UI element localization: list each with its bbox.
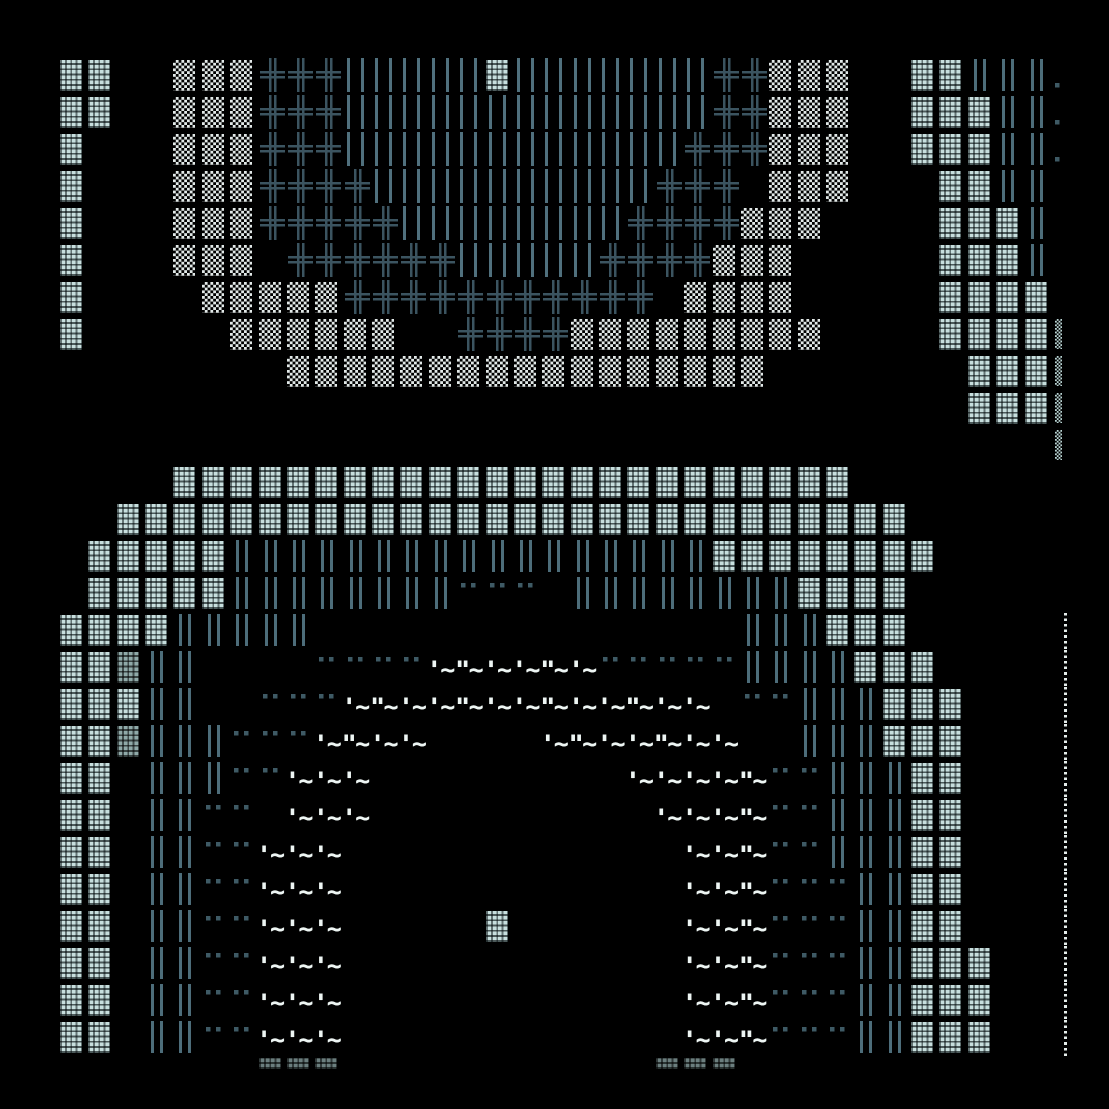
dense-bars-cell-glyph	[432, 169, 449, 203]
wave-double-tick-cell-glyph: "~	[739, 914, 766, 944]
wave-double-tick-cell: "~	[344, 723, 373, 760]
wall-double-bar-cell-glyph	[520, 540, 532, 572]
block-bright-cell	[429, 501, 458, 538]
double-cross-cell	[344, 279, 373, 316]
block-bright-cell-glyph	[429, 467, 451, 498]
block-white-cell	[202, 131, 231, 168]
block-bright-cell	[287, 464, 316, 501]
wall-double-bar-cell	[315, 538, 344, 575]
block-bright-cell	[939, 686, 968, 723]
wave-cell: '~	[287, 945, 316, 982]
dots-pair-cell-glyph	[400, 649, 429, 686]
wave-cell-glyph: '~	[711, 914, 738, 944]
block-white-cell	[798, 205, 827, 242]
double-cross-cell-glyph	[742, 132, 767, 166]
wall-double-bar-cell-glyph	[236, 540, 248, 572]
block-bright-cell	[571, 464, 600, 501]
dotted-line-cell	[1053, 834, 1082, 871]
double-cross-cell-glyph	[373, 243, 398, 277]
block-white-cell-glyph	[400, 356, 422, 387]
block-bright-cell-glyph	[684, 467, 706, 498]
block-white-cell	[344, 353, 373, 390]
wall-double-bar-cell-glyph	[151, 910, 163, 942]
wall-double-bar-cell-glyph	[804, 651, 816, 683]
block-bright-cell	[145, 501, 174, 538]
dots-pair-cell	[769, 1019, 798, 1056]
block-bright-cell	[911, 723, 940, 760]
dense-bars-cell	[542, 57, 571, 94]
block-white-cell-glyph	[769, 97, 791, 128]
block-bright-cell-glyph	[627, 467, 649, 498]
wall-double-bar-cell-glyph	[179, 725, 191, 757]
dots-pair-cell-glyph	[769, 797, 798, 834]
wall-double-bar-cell	[741, 612, 770, 649]
wave-double-tick-cell-glyph: "~	[739, 951, 766, 981]
wall-double-bar-cell	[627, 575, 656, 612]
wave-cell-glyph: '~	[682, 1025, 709, 1055]
wall-double-bar-cell-glyph	[151, 836, 163, 868]
block-white-cell	[230, 168, 259, 205]
dots-pair-cell	[400, 649, 429, 686]
double-cross-cell	[259, 205, 288, 242]
dots-pair-cell-glyph	[287, 723, 316, 760]
dense-bars-cell-glyph	[630, 169, 647, 203]
double-cross-cell-glyph	[515, 317, 540, 351]
block-white-cell	[769, 316, 798, 353]
wall-double-bar-cell-glyph	[265, 577, 277, 609]
double-cross-cell-glyph	[430, 243, 455, 277]
wave-cell: '~	[400, 723, 429, 760]
wall-double-bar-cell-glyph	[179, 984, 191, 1016]
dense-bars-cell-glyph	[602, 58, 619, 92]
wall-double-bar-cell-glyph	[151, 799, 163, 831]
wave-cell-glyph: '~	[540, 729, 567, 759]
block-bright-cell-glyph	[883, 726, 905, 757]
block-bright-cell	[145, 575, 174, 612]
wall-double-bar-cell	[713, 575, 742, 612]
wave-double-tick-cell: "~	[741, 945, 770, 982]
block-bright-cell	[344, 501, 373, 538]
dots-pair-cell-glyph	[798, 871, 827, 908]
wave-cell-glyph: '~	[285, 877, 312, 907]
dense-bars-cell	[429, 205, 458, 242]
dotted-line-cell-glyph	[1064, 834, 1067, 871]
block-bright-cell-glyph	[486, 504, 508, 535]
double-cross-cell	[259, 94, 288, 131]
block-bright-cell	[713, 538, 742, 575]
wall-double-bar-cell-glyph	[179, 762, 191, 794]
dotted-line-cell	[1053, 1019, 1082, 1056]
double-cross-cell-glyph	[657, 169, 682, 203]
wall-double-bar-cell-glyph	[719, 577, 731, 609]
wall-double-bar-cell	[259, 538, 288, 575]
wall-double-bar-cell-glyph	[690, 577, 702, 609]
wave-cell: '~	[287, 908, 316, 945]
wave-cell-glyph: '~	[597, 692, 624, 722]
wall-double-bar-cell	[173, 1019, 202, 1056]
block-bright-cell	[911, 57, 940, 94]
double-cross-cell	[542, 279, 571, 316]
block-bright-cell-glyph	[514, 504, 536, 535]
wall-double-bar-cell-glyph	[350, 540, 362, 572]
block-white-cell-glyph	[656, 319, 678, 350]
wave-cell-glyph: '~	[682, 803, 709, 833]
block-fade-cell-glyph	[259, 1058, 281, 1069]
block-bright-cell	[996, 279, 1025, 316]
dot-cell	[1053, 131, 1082, 168]
dense-bars-cell-glyph	[602, 95, 619, 129]
wave-cell: '~	[259, 871, 288, 908]
wave-cell: '~	[684, 871, 713, 908]
wall-double-bar-cell-glyph	[179, 910, 191, 942]
wall-double-bar-cell-glyph	[832, 836, 844, 868]
block-white-cell	[230, 205, 259, 242]
block-bright-cell	[60, 612, 89, 649]
block-fade-cell-glyph	[713, 1058, 735, 1069]
double-cross-cell	[627, 242, 656, 279]
block-dim-cell-glyph	[117, 652, 139, 683]
wall-double-bar-cell	[769, 575, 798, 612]
block-bright-cell	[88, 982, 117, 1019]
double-cross-cell-glyph	[345, 169, 370, 203]
wave-cell: '~	[656, 760, 685, 797]
double-cross-cell	[372, 205, 401, 242]
block-bright-cell	[88, 797, 117, 834]
dots-pair-cell-glyph	[769, 945, 798, 982]
wave-cell: '~	[315, 797, 344, 834]
dots-pair-cell-glyph	[741, 686, 770, 723]
dots-pair-cell-glyph	[826, 908, 855, 945]
dense-bars-cell-glyph	[347, 132, 364, 166]
block-white-cell	[173, 57, 202, 94]
double-cross-cell-glyph	[458, 317, 483, 351]
dense-bars-cell	[571, 94, 600, 131]
block-bright-cell-glyph	[88, 97, 110, 128]
block-bright-cell	[996, 316, 1025, 353]
dense-bars-cell	[457, 131, 486, 168]
wave-cell: '~	[684, 723, 713, 760]
dots-pair-cell	[798, 797, 827, 834]
block-bright-cell	[883, 575, 912, 612]
block-bright-cell-glyph	[968, 208, 990, 239]
wave-cell-glyph: '~	[313, 1025, 340, 1055]
block-bright-cell-glyph	[939, 171, 961, 202]
wave-double-tick-cell-glyph: "~	[739, 840, 766, 870]
dots-pair-cell	[486, 575, 515, 612]
wall-double-bar-cell	[883, 871, 912, 908]
dots-pair-cell	[826, 908, 855, 945]
dense-bars-cell	[457, 205, 486, 242]
wave-cell-glyph: '~	[257, 877, 284, 907]
block-white-cell-glyph	[173, 208, 195, 239]
zigzag-edge-cell-glyph	[1055, 319, 1062, 349]
block-bright-cell-glyph	[287, 467, 309, 498]
block-white-cell-glyph	[713, 319, 735, 350]
dots-pair-cell	[372, 649, 401, 686]
wall-double-bar-cell-glyph	[889, 799, 901, 831]
block-bright-cell	[88, 834, 117, 871]
wave-cell-glyph: '~	[370, 729, 397, 759]
wall-double-bar-cell-glyph	[1031, 96, 1043, 128]
dots-pair-cell-glyph	[514, 575, 543, 612]
wall-double-bar-cell	[1025, 168, 1054, 205]
wall-double-bar-cell-glyph	[775, 614, 787, 646]
wall-double-bar-cell	[145, 982, 174, 1019]
block-bright-cell-glyph	[798, 578, 820, 609]
dotted-line-cell-glyph	[1064, 945, 1067, 982]
block-bright-cell	[429, 464, 458, 501]
dots-pair-cell-glyph	[230, 1019, 259, 1056]
block-bright-cell-glyph	[713, 467, 735, 498]
wave-cell: '~	[259, 908, 288, 945]
wall-double-bar-cell	[145, 686, 174, 723]
dense-bars-cell	[571, 131, 600, 168]
wall-double-bar-cell	[883, 908, 912, 945]
dots-pair-cell-glyph	[798, 908, 827, 945]
block-bright-cell-glyph	[911, 800, 933, 831]
block-bright-cell	[854, 538, 883, 575]
wall-double-bar-cell	[173, 834, 202, 871]
zigzag-edge-cell	[1053, 353, 1082, 390]
dots-pair-cell-glyph	[202, 797, 231, 834]
wall-double-bar-cell-glyph	[208, 725, 220, 757]
block-bright-cell-glyph	[117, 689, 139, 720]
wall-double-bar-cell	[996, 131, 1025, 168]
wave-cell: '~	[315, 723, 344, 760]
block-white-cell	[202, 205, 231, 242]
block-white-cell	[571, 316, 600, 353]
wall-double-bar-cell	[854, 945, 883, 982]
wall-double-bar-cell	[173, 686, 202, 723]
zigzag-edge-cell	[1053, 427, 1082, 464]
block-white-cell	[627, 316, 656, 353]
dots-pair-cell-glyph	[230, 797, 259, 834]
double-cross-cell	[514, 316, 543, 353]
block-bright-cell-glyph	[60, 763, 82, 794]
wall-double-bar-cell	[457, 538, 486, 575]
double-cross-cell-glyph	[657, 243, 682, 277]
double-cross-cell	[741, 57, 770, 94]
block-white-cell	[259, 316, 288, 353]
block-bright-cell-glyph	[60, 911, 82, 942]
block-bright-cell-glyph	[60, 874, 82, 905]
block-bright-cell	[486, 501, 515, 538]
block-bright-cell-glyph	[344, 504, 366, 535]
wave-cell: '~	[344, 760, 373, 797]
block-bright-cell	[911, 982, 940, 1019]
block-bright-cell	[60, 797, 89, 834]
wall-double-bar-cell	[486, 538, 515, 575]
block-bright-cell	[117, 575, 146, 612]
wave-cell-glyph: '~	[682, 692, 709, 722]
block-bright-cell	[230, 464, 259, 501]
block-bright-cell	[939, 834, 968, 871]
block-bright-cell-glyph	[599, 467, 621, 498]
block-bright-cell-glyph	[911, 837, 933, 868]
block-fade-cell	[287, 1056, 316, 1093]
wall-double-bar-cell-glyph	[860, 836, 872, 868]
dense-bars-cell-glyph	[347, 95, 364, 129]
block-bright-cell-glyph	[996, 393, 1018, 424]
block-white-cell-glyph	[230, 208, 252, 239]
block-white-cell	[684, 279, 713, 316]
wall-double-bar-cell	[259, 612, 288, 649]
block-bright-cell-glyph	[798, 504, 820, 535]
block-bright-cell-glyph	[145, 504, 167, 535]
dots-pair-cell	[599, 649, 628, 686]
double-cross-cell-glyph	[288, 169, 313, 203]
block-white-cell-glyph	[769, 208, 791, 239]
block-white-cell-glyph	[287, 356, 309, 387]
block-white-cell-glyph	[315, 319, 337, 350]
block-white-cell-glyph	[713, 245, 735, 276]
double-cross-cell	[315, 205, 344, 242]
double-cross-cell	[429, 279, 458, 316]
block-white-cell-glyph	[372, 319, 394, 350]
wave-cell: '~	[542, 723, 571, 760]
block-white-cell-glyph	[769, 319, 791, 350]
block-white-cell	[769, 242, 798, 279]
block-bright-cell-glyph	[60, 800, 82, 831]
double-cross-cell	[713, 131, 742, 168]
wall-double-bar-cell	[599, 575, 628, 612]
block-bright-cell	[798, 575, 827, 612]
block-white-cell-glyph	[230, 319, 252, 350]
wall-double-bar-cell	[798, 612, 827, 649]
block-white-cell	[713, 279, 742, 316]
block-bright-cell-glyph	[939, 726, 961, 757]
dots-pair-cell	[230, 760, 259, 797]
wall-double-bar-cell	[826, 649, 855, 686]
wall-double-bar-cell	[883, 834, 912, 871]
wave-double-tick-cell-glyph: "~	[540, 692, 567, 722]
double-cross-cell	[457, 279, 486, 316]
wall-double-bar-cell	[571, 538, 600, 575]
wave-cell-glyph: '~	[285, 914, 312, 944]
wave-cell-glyph: '~	[342, 803, 369, 833]
wall-double-bar-cell	[854, 871, 883, 908]
block-bright-cell	[939, 982, 968, 1019]
dense-bars-cell	[400, 131, 429, 168]
block-bright-cell	[883, 501, 912, 538]
block-white-cell	[230, 94, 259, 131]
dots-pair-cell	[769, 834, 798, 871]
wave-cell-glyph: '~	[285, 951, 312, 981]
double-cross-cell-glyph	[487, 280, 512, 314]
block-bright-cell-glyph	[202, 504, 224, 535]
wall-double-bar-cell-glyph	[690, 540, 702, 572]
wave-double-tick-cell: "~	[542, 686, 571, 723]
block-bright-cell-glyph	[88, 1022, 110, 1053]
block-white-cell	[826, 57, 855, 94]
wave-cell-glyph: '~	[484, 692, 511, 722]
block-bright-cell	[883, 538, 912, 575]
block-bright-cell	[968, 982, 997, 1019]
wall-double-bar-cell-glyph	[889, 947, 901, 979]
wave-cell: '~	[684, 797, 713, 834]
block-bright-cell	[627, 464, 656, 501]
wall-double-bar-cell-glyph	[1002, 96, 1014, 128]
wave-cell: '~	[713, 871, 742, 908]
wave-cell: '~	[713, 723, 742, 760]
block-bright-cell-glyph	[60, 615, 82, 646]
dotted-line-cell	[1053, 723, 1082, 760]
block-bright-cell-glyph	[911, 726, 933, 757]
wave-double-tick-cell: "~	[741, 834, 770, 871]
block-white-cell-glyph	[230, 171, 252, 202]
block-bright-cell-glyph	[826, 504, 848, 535]
block-white-cell-glyph	[684, 282, 706, 313]
dots-pair-cell-glyph	[656, 649, 685, 686]
block-white-cell	[315, 316, 344, 353]
block-bright-cell	[599, 501, 628, 538]
ascii-art-grid: '~"~'~'~"~'~'~"~'~'~"~'~'~"~'~'~"~'~'~'~…	[0, 0, 1109, 1109]
dots-pair-cell	[826, 945, 855, 982]
wave-double-tick-cell: "~	[627, 686, 656, 723]
dotted-line-cell	[1053, 612, 1082, 649]
block-bright-cell-glyph	[826, 578, 848, 609]
wall-double-bar-cell-glyph	[633, 577, 645, 609]
block-white-cell-glyph	[826, 171, 848, 202]
dense-bars-cell	[486, 131, 515, 168]
dense-bars-cell-glyph	[517, 169, 534, 203]
block-white-cell	[344, 316, 373, 353]
double-cross-cell-glyph	[345, 280, 370, 314]
block-bright-cell-glyph	[826, 615, 848, 646]
wave-cell: '~	[684, 982, 713, 1019]
block-white-cell-glyph	[627, 356, 649, 387]
wave-cell-glyph: '~	[285, 766, 312, 796]
double-cross-cell-glyph	[345, 243, 370, 277]
wall-double-bar-cell-glyph	[577, 577, 589, 609]
block-white-cell-glyph	[741, 282, 763, 313]
dots-pair-cell-glyph	[230, 908, 259, 945]
double-cross-cell	[599, 279, 628, 316]
zigzag-edge-cell	[1053, 390, 1082, 427]
dots-pair-cell	[741, 686, 770, 723]
dots-pair-cell	[230, 797, 259, 834]
double-cross-cell	[684, 131, 713, 168]
block-bright-cell-glyph	[230, 467, 252, 498]
wave-cell: '~	[684, 834, 713, 871]
block-bright-cell-glyph	[88, 874, 110, 905]
wall-double-bar-cell-glyph	[860, 1021, 872, 1053]
block-bright-cell-glyph	[911, 652, 933, 683]
wall-double-bar-cell	[883, 945, 912, 982]
block-white-cell	[202, 94, 231, 131]
block-bright-cell	[1025, 316, 1054, 353]
block-bright-cell	[486, 908, 515, 945]
block-bright-cell-glyph	[571, 467, 593, 498]
wall-double-bar-cell	[826, 686, 855, 723]
block-bright-cell	[911, 1019, 940, 1056]
block-bright-cell-glyph	[173, 504, 195, 535]
dots-pair-cell	[713, 649, 742, 686]
block-bright-cell	[571, 501, 600, 538]
block-bright-cell	[60, 908, 89, 945]
block-bright-cell	[911, 834, 940, 871]
block-bright-cell	[202, 464, 231, 501]
block-bright-cell	[968, 131, 997, 168]
double-cross-cell-glyph	[260, 169, 285, 203]
wave-cell-glyph: '~	[285, 803, 312, 833]
dense-bars-cell	[599, 131, 628, 168]
dotted-line-cell-glyph	[1064, 649, 1067, 686]
block-bright-cell	[883, 686, 912, 723]
block-bright-cell	[542, 464, 571, 501]
dense-bars-cell	[571, 205, 600, 242]
dots-pair-cell-glyph	[287, 686, 316, 723]
